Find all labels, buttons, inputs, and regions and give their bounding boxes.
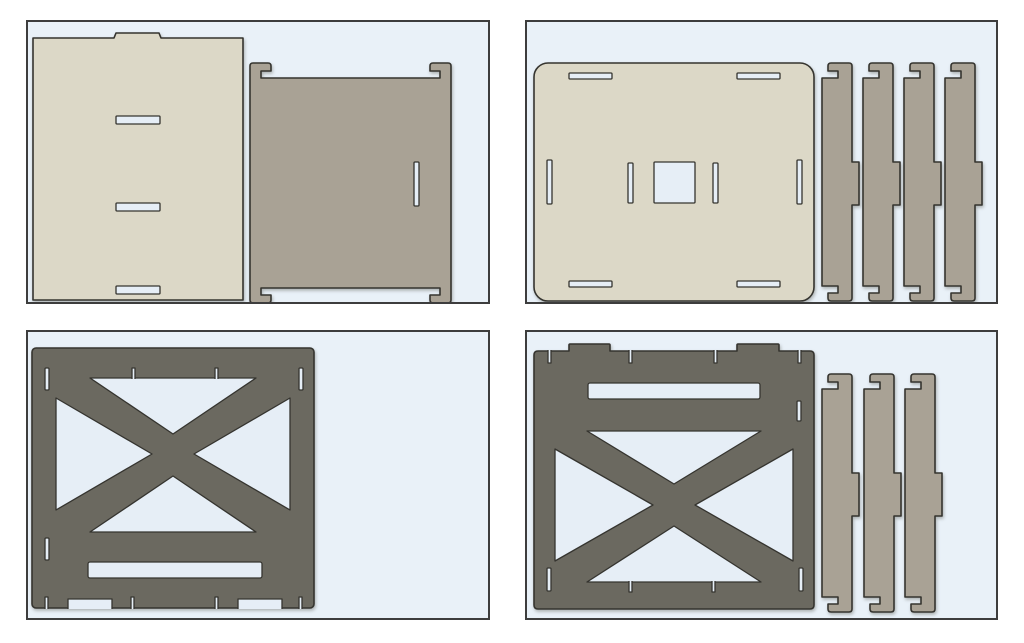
lid-plate-outline[interactable]	[33, 33, 243, 300]
sheet-panel-3	[26, 330, 490, 620]
part-batten-strip-1[interactable]	[822, 63, 859, 301]
x-panel-b-top-slit-1	[548, 350, 551, 363]
x-panel-b-top-slit-2	[629, 350, 632, 363]
sheet-1-drawing	[28, 22, 488, 302]
lid-slot-1	[116, 116, 160, 124]
x-panel-a-top-slit-right	[215, 368, 218, 379]
base-slot-bottom-right	[737, 281, 780, 287]
sheet-4-drawing	[527, 332, 996, 618]
part-batten-strip-7[interactable]	[905, 374, 942, 612]
x-panel-a-bottom-notch-left	[68, 599, 112, 609]
part-x-brace-panel-b[interactable]	[534, 344, 814, 609]
x-panel-a-bottom-slit-4	[299, 597, 302, 609]
x-panel-a-slot-lower-left	[45, 538, 49, 560]
part-batten-strip-6[interactable]	[864, 374, 901, 612]
base-slot-mid-inner-left	[628, 163, 633, 203]
base-slot-mid-far-left	[547, 160, 552, 204]
sheet-layout-canvas	[0, 0, 1024, 643]
x-panel-a-long-slot	[88, 562, 262, 578]
base-slot-top-right	[737, 73, 780, 79]
base-center-square-hole	[654, 162, 695, 203]
base-slot-mid-inner-right	[713, 163, 718, 203]
x-panel-a-slot-upper-right	[299, 368, 303, 390]
part-lid-plate[interactable]	[33, 33, 243, 300]
x-panel-a-slot-upper-left	[45, 368, 49, 390]
sheet-panel-1	[26, 20, 490, 304]
sheet-3-drawing	[28, 332, 488, 618]
part-batten-strip-4[interactable]	[945, 63, 982, 301]
sheet-2-drawing	[527, 22, 996, 302]
base-slot-bottom-left	[569, 281, 612, 287]
x-panel-b-bottom-slit-right	[712, 581, 715, 592]
x-panel-a-top-slit-left	[132, 368, 135, 379]
x-panel-a-bottom-notch-right	[238, 599, 282, 609]
lid-slot-2	[116, 203, 160, 211]
part-batten-strip-3[interactable]	[904, 63, 941, 301]
part-base-plate[interactable]	[534, 63, 814, 301]
x-panel-b-bottom-slit-left	[629, 581, 632, 592]
x-panel-a-bottom-slit-1	[45, 597, 48, 609]
part-batten-strip-2[interactable]	[863, 63, 900, 301]
base-slot-top-left	[569, 73, 612, 79]
x-panel-b-slot-lower-left	[547, 568, 551, 591]
x-panel-b-slot-upper-right	[797, 401, 801, 421]
part-batten-strip-5[interactable]	[822, 374, 859, 612]
x-panel-b-slot-lower-right	[799, 568, 803, 591]
part-side-panel-hooked[interactable]	[250, 63, 451, 302]
x-panel-b-top-slit-4	[798, 350, 801, 363]
x-panel-b-long-slot	[588, 383, 760, 399]
x-panel-a-bottom-slit-2	[131, 597, 134, 609]
part-x-brace-panel-a[interactable]	[32, 348, 314, 609]
base-slot-mid-far-right	[797, 160, 802, 204]
lid-slot-3	[116, 286, 160, 294]
side-panel-slot	[414, 162, 419, 206]
side-panel-outline[interactable]	[250, 63, 451, 302]
sheet-panel-4	[525, 330, 998, 620]
x-panel-b-top-slit-3	[714, 350, 717, 363]
x-panel-a-bottom-slit-3	[215, 597, 218, 609]
sheet-panel-2	[525, 20, 998, 304]
